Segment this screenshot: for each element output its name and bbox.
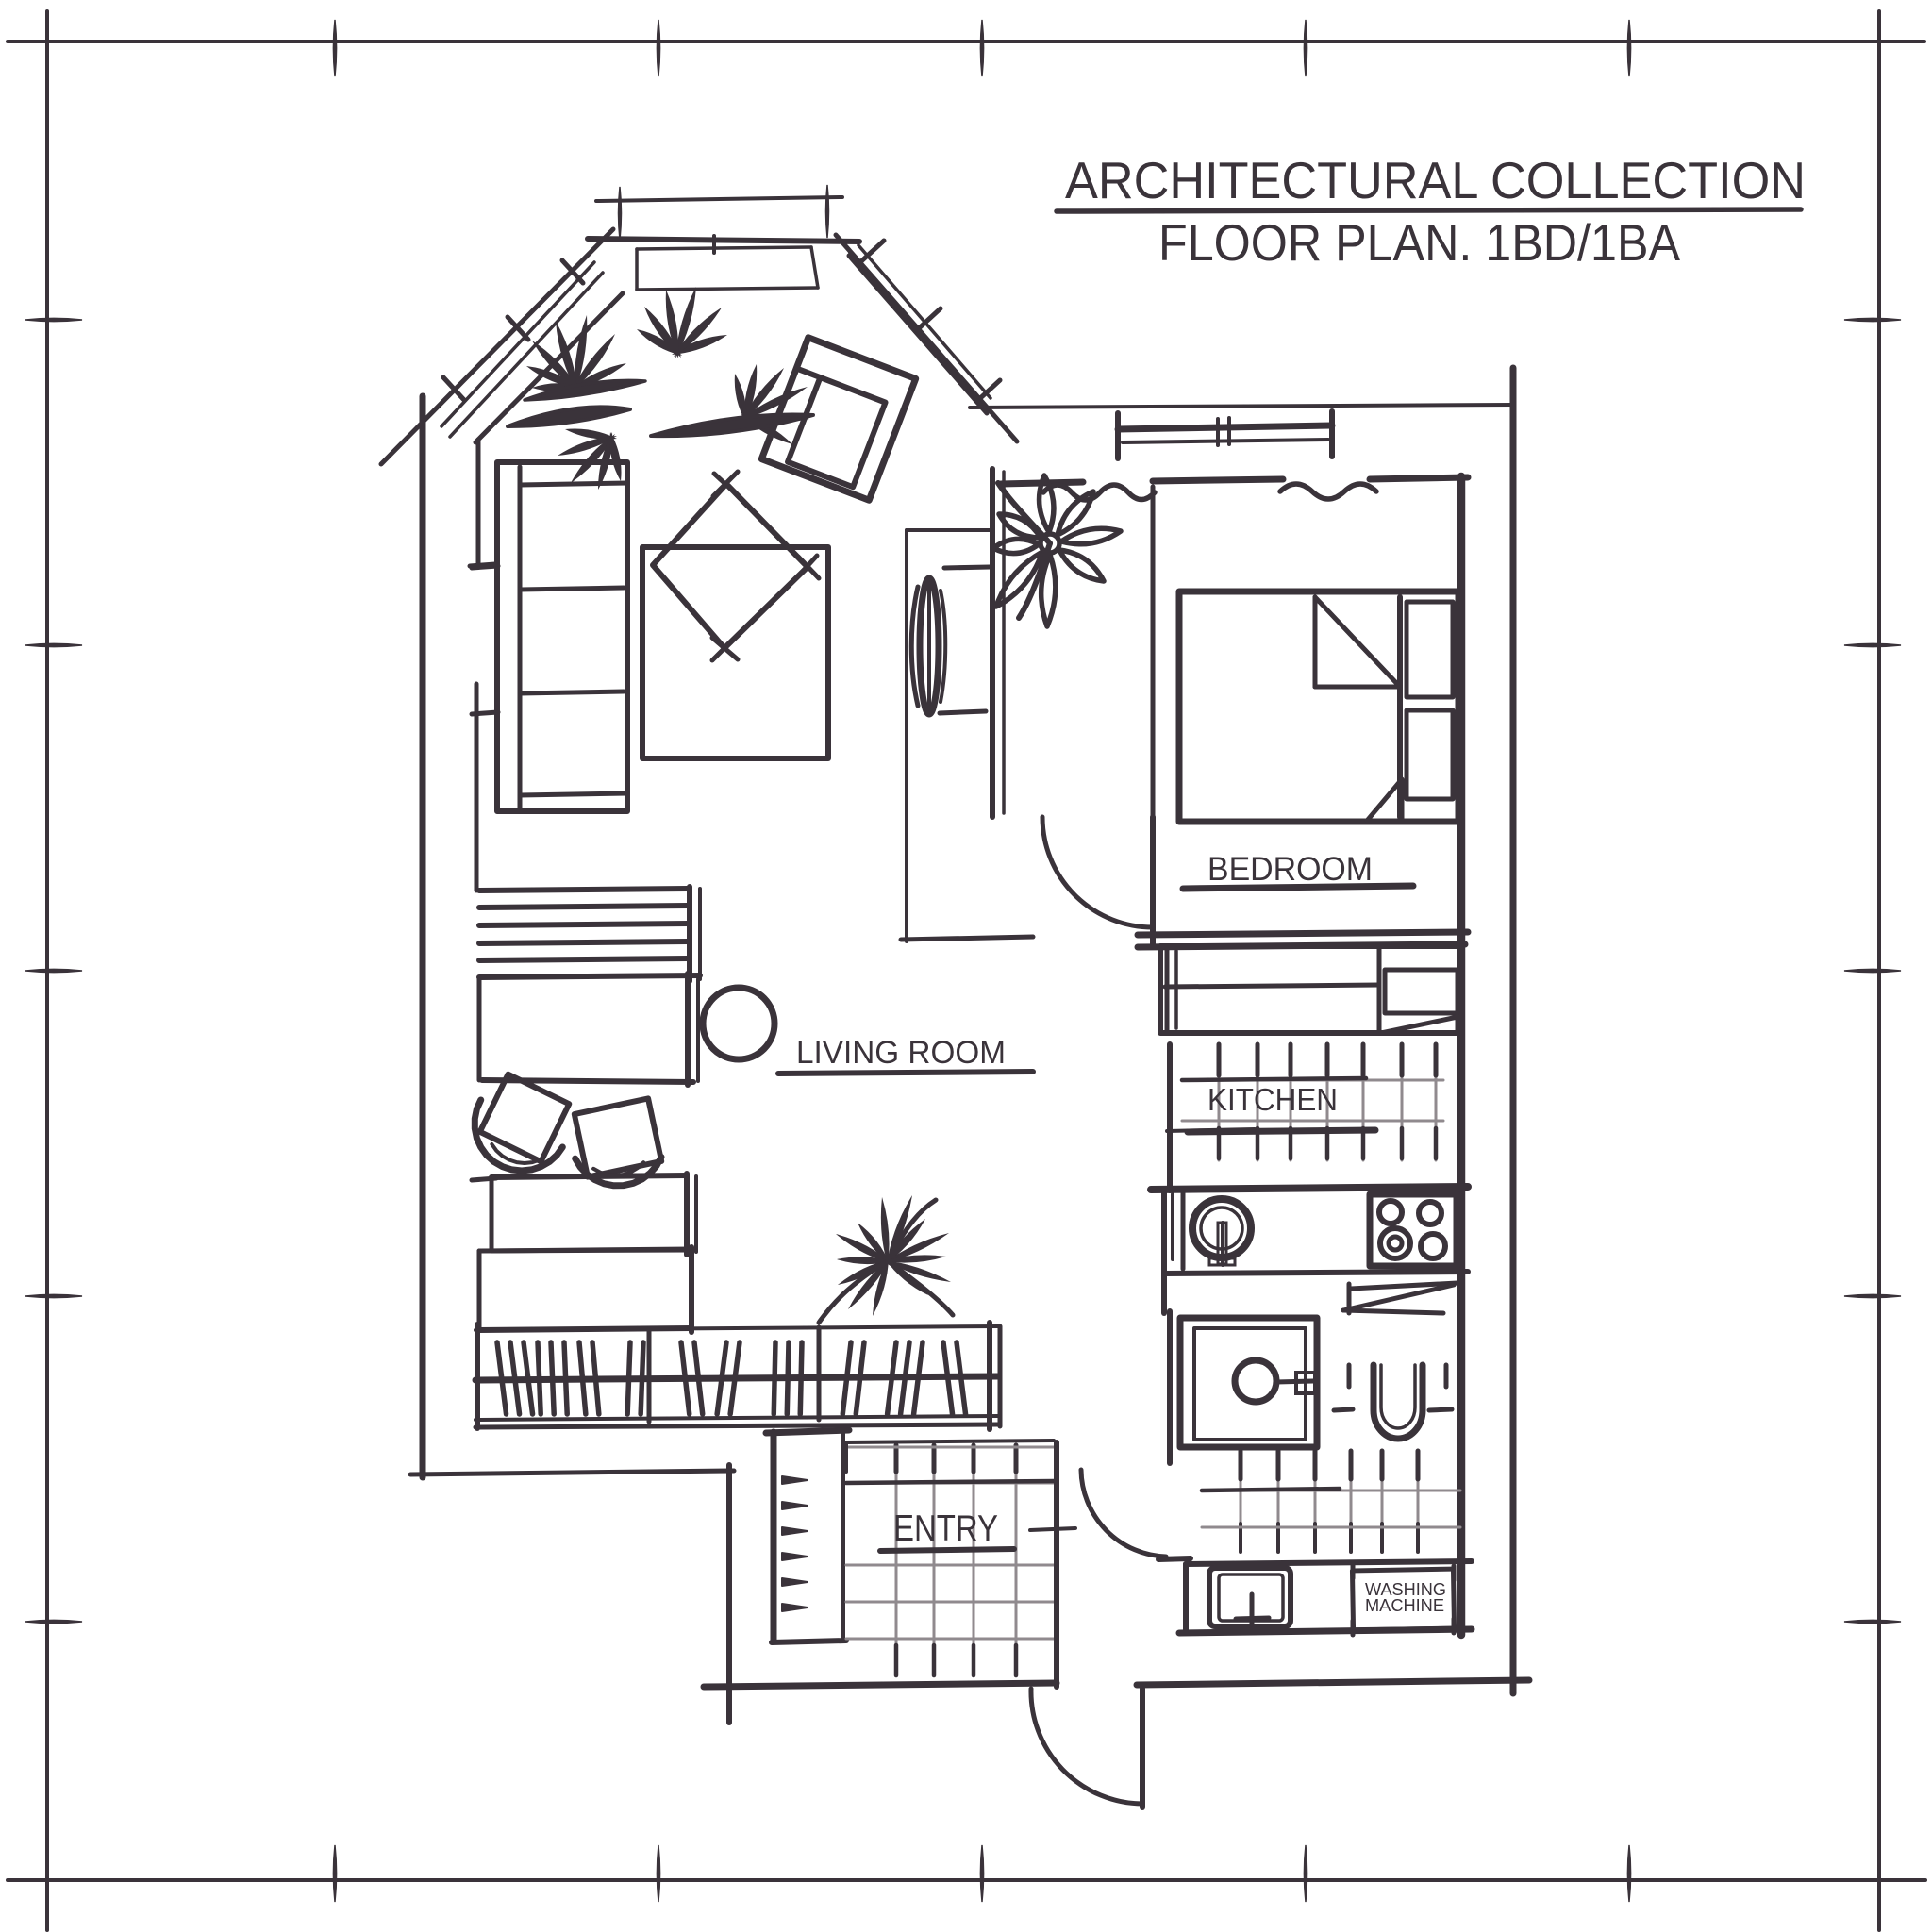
svg-text:MACHINE: MACHINE [1365, 1596, 1444, 1615]
svg-text:KITCHEN: KITCHEN [1207, 1082, 1338, 1117]
svg-text:FLOOR PLAN. 1BD/1BA: FLOOR PLAN. 1BD/1BA [1158, 213, 1680, 272]
svg-text:ARCHITECTURAL COLLECTION: ARCHITECTURAL COLLECTION [1065, 151, 1806, 209]
svg-text:BEDROOM: BEDROOM [1207, 851, 1373, 888]
svg-text:LIVING ROOM: LIVING ROOM [796, 1035, 1006, 1071]
svg-text:ENTRY: ENTRY [893, 1508, 998, 1549]
